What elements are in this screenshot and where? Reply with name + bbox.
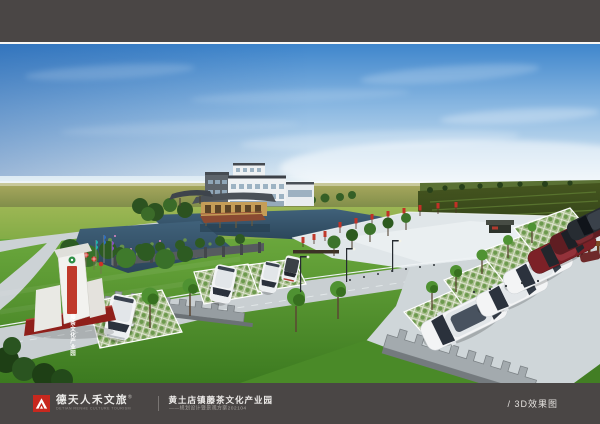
project-title: 黄土店镇藤茶文化产业园 [169, 396, 274, 405]
project-subtitle: ——规划设计暨景观方案202104 [169, 406, 255, 411]
sign-step-left [34, 285, 62, 332]
brand-block: 德天人禾文旅® DETIAN RENHE CULTURE TOURISM [33, 395, 148, 412]
brand-text: 德天人禾文旅® DETIAN RENHE CULTURE TOURISM [56, 395, 148, 412]
sign-red-text-plate [67, 266, 77, 314]
scene-svg [0, 44, 600, 383]
service-kiosk [486, 220, 514, 233]
mountain-a-logo-icon [33, 395, 50, 412]
top-frame-bar [0, 0, 600, 42]
brand-name-en: DETIAN RENHE CULTURE TOURISM [56, 407, 131, 411]
trademark-mark: ® [128, 395, 132, 401]
render-3d-view: 藤茶文化产业园 [0, 44, 600, 383]
brand-name-cn: 德天人禾文旅® [56, 395, 148, 406]
project-block: 黄土店镇藤茶文化产业园 ——规划设计暨景观方案202104 [169, 396, 274, 412]
page-label: / 3D效果图 [507, 397, 558, 410]
entrance-sign-text: 藤茶文化产业园 [66, 311, 78, 358]
footer-divider [158, 396, 159, 411]
presentation-board: 藤茶文化产业园 德天人禾文旅® DETIAN RENHE CULTURE TOU… [0, 0, 600, 424]
footer-bar: 德天人禾文旅® DETIAN RENHE CULTURE TOURISM 黄土店… [0, 383, 600, 424]
teahouse-building [192, 193, 276, 232]
